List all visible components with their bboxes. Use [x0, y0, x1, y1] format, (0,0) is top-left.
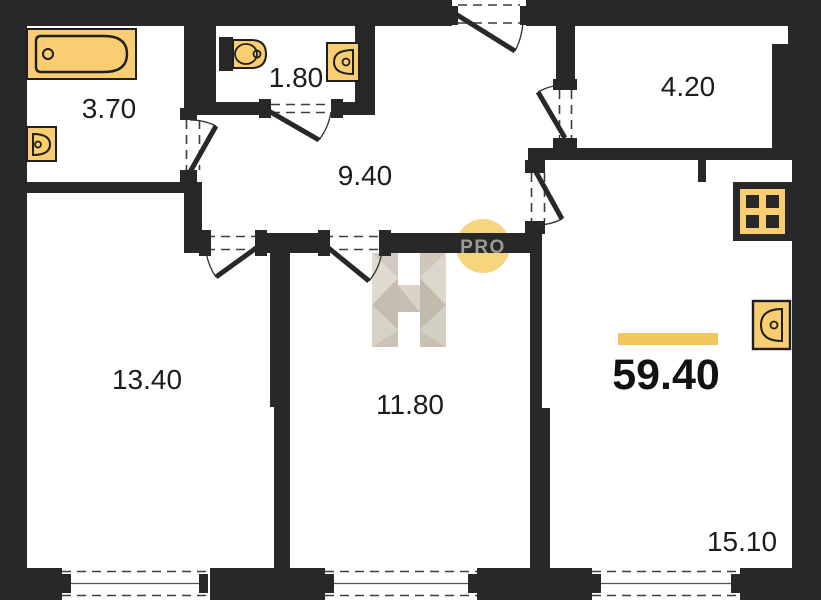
- window-room: [325, 572, 477, 596]
- bathtub-icon: [27, 29, 136, 79]
- room-area-label-bedroom: 13.40: [112, 364, 182, 395]
- room-area-label-wc: 1.80: [269, 62, 324, 93]
- bedroom-door: [199, 230, 267, 277]
- room-area-label-hallway: 9.40: [338, 160, 393, 191]
- toilet-icon: [219, 37, 266, 71]
- room-area-label-room: 11.80: [376, 389, 444, 420]
- floor-plan: 3.70 1.80 9.40 4.20 13.40 11.80 15.10 59…: [0, 0, 821, 600]
- bath-sink-icon: [27, 127, 56, 161]
- wall-notch: [764, 26, 788, 44]
- kitchen-living-door: [525, 160, 562, 234]
- kitchen-sink-icon: [753, 301, 790, 349]
- windows: [62, 572, 740, 596]
- room-area-label-kitchen-living: 15.10: [707, 526, 777, 557]
- stove-icon: [733, 182, 792, 241]
- h-watermark-icon: [372, 253, 446, 347]
- entrance-door: [445, 5, 533, 51]
- pro-badge-text: PRO: [460, 237, 506, 258]
- storage-door: [538, 79, 577, 149]
- total-area-value: 59.40: [612, 351, 720, 399]
- bathroom-door: [180, 108, 216, 182]
- window-bedroom: [62, 572, 210, 596]
- wc-sink-icon: [327, 43, 359, 81]
- total-area-label: 59.40: [612, 333, 720, 399]
- wc-door: [259, 99, 343, 140]
- room-area-label-storage: 4.20: [661, 71, 716, 102]
- total-area-accent-bar: [618, 333, 718, 345]
- room-area-label-bathroom: 3.70: [82, 93, 137, 124]
- window-kitchen-living: [592, 572, 740, 596]
- floor-plan-page: 3.70 1.80 9.40 4.20 13.40 11.80 15.10 59…: [0, 0, 821, 600]
